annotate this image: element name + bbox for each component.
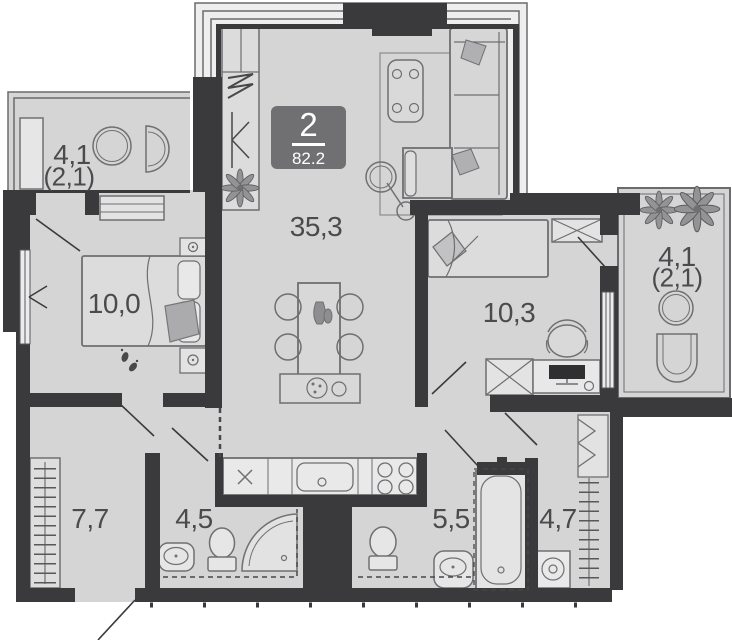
coffee-table	[388, 60, 423, 122]
room-area-bedroom-right: 10,3	[483, 297, 536, 329]
room-area-laundry: 4,7	[539, 503, 576, 535]
room-area-bathroom: 4,5	[175, 503, 212, 535]
room-area-bathroom-2: 5,5	[432, 503, 469, 535]
desk	[533, 360, 600, 393]
bathtub	[476, 471, 526, 589]
room-area-balcony-left-reduced: (2,1)	[44, 162, 95, 193]
desk-chair	[547, 320, 588, 357]
plant-icon	[640, 191, 678, 229]
badge-rooms-count: 2	[292, 108, 324, 146]
dresser	[100, 196, 164, 220]
room-area-living: 35,3	[290, 211, 343, 243]
apartment-badge: 2 82.2	[271, 106, 346, 169]
window-right	[602, 292, 614, 388]
kitchen-island	[280, 374, 360, 403]
toilet-2	[369, 527, 397, 570]
washing-machine	[536, 551, 570, 588]
kitchen-counter	[223, 458, 417, 495]
wardrobe-folding	[578, 415, 608, 477]
floorplan: 35,3 10,0 10,3 4,1 (2,1) 4,1 (2,1) 7,7 4…	[0, 0, 732, 640]
room-area-balcony-right-reduced: (2,1)	[652, 263, 703, 294]
plant-icon	[221, 169, 259, 207]
storage-box	[486, 359, 533, 395]
single-bed	[428, 220, 548, 277]
wardrobe-x	[552, 219, 602, 242]
sink-2	[434, 551, 473, 588]
floorplan-drawing	[0, 0, 732, 640]
badge-total-area: 82.2	[292, 150, 325, 167]
plant-icon	[674, 186, 720, 232]
sink	[159, 543, 194, 571]
room-area-bedroom-left: 10,0	[88, 288, 141, 320]
room-area-hallway: 7,7	[71, 503, 108, 535]
coat-rack-hall	[30, 458, 60, 588]
